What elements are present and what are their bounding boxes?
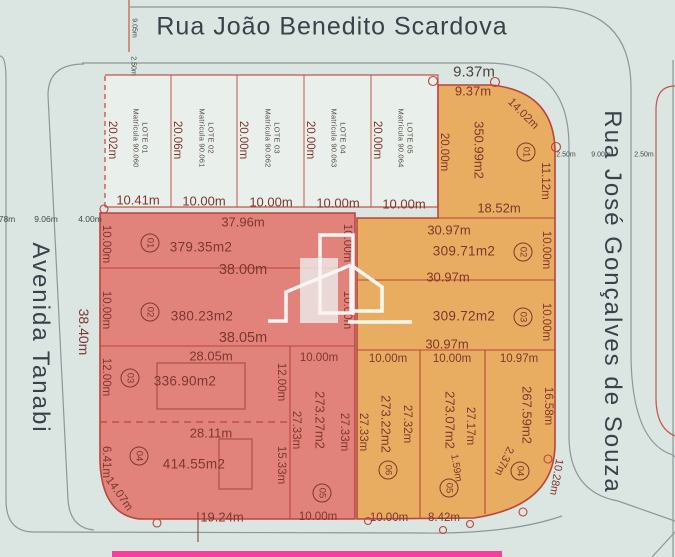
area-label: 350.99m2	[472, 121, 487, 179]
dim-label: 4.00m	[78, 214, 102, 224]
lot-label: LOTE 04Matrícula 90.063	[329, 108, 348, 167]
dim-label: 16.58m	[542, 387, 554, 425]
lot-number-badge: 03	[514, 308, 533, 327]
lot-number-badge: 02	[141, 303, 160, 322]
area-label: 267.59m2	[520, 386, 535, 444]
dim-label: 14.07m	[103, 475, 135, 513]
dim-label: 10.00m	[382, 197, 425, 212]
dim-label: 30.97m	[425, 337, 468, 352]
dim-label: 78m	[0, 214, 15, 224]
site-plan-map: Rua João Benedito Scardova Avenida Tanab…	[0, 0, 675, 557]
street-name-right: Rua José Gonçalves de Souza	[598, 110, 626, 494]
street-name-left: Avenida Tanabi	[26, 242, 54, 433]
area-label: 380.23m2	[171, 309, 233, 324]
dim-label: 28.11m	[190, 426, 232, 441]
lot-number-badge: 01	[141, 234, 160, 253]
dim-label: 10.00m	[341, 291, 353, 329]
frontage-label: 38.40m	[76, 309, 92, 356]
dim-label: 10.00m	[540, 303, 552, 341]
dim-label: 10.00m	[249, 195, 292, 210]
dim-label: 30.97m	[427, 223, 470, 238]
dim-label: 20.00m	[371, 121, 383, 159]
dim-label: 10.00m	[370, 512, 408, 524]
lot-number-badge: 06	[379, 461, 398, 480]
dim-label: 10.00m	[369, 353, 407, 365]
labels-layer: Rua João Benedito Scardova Avenida Tanab…	[0, 0, 675, 557]
area-label: 309.72m2	[433, 309, 495, 324]
dim-label: 14.02m	[505, 96, 541, 132]
lot-number-badge: 01	[517, 143, 536, 162]
area-label: 414.55m2	[163, 457, 225, 472]
lot-number-badge: 04	[130, 447, 149, 466]
area-label: 309.71m2	[433, 244, 495, 259]
lot-number-badge: 03	[121, 369, 140, 388]
dim-label: 2.50m	[130, 56, 137, 75]
dim-label: 19.24m	[200, 510, 243, 525]
dim-label: 20.00m	[438, 133, 450, 171]
area-label: 336.90m2	[154, 374, 216, 389]
lot-label: LOTE 05Matrícula 90.064	[396, 108, 415, 167]
dim-label: 28.05m	[189, 349, 232, 364]
area-label: 273.22m2	[379, 395, 394, 453]
dim-label: 9.37m	[455, 84, 491, 99]
dim-label: 10.00m	[316, 196, 359, 211]
lot-number-badge: 02	[514, 243, 533, 262]
dim-label: 12.00m	[275, 363, 287, 401]
dim-label: 9.37m	[453, 64, 495, 81]
dim-label: 10.00m	[341, 224, 353, 262]
dim-label: 10.97m	[500, 353, 538, 365]
dim-label: 37.96m	[221, 215, 264, 230]
dim-label: 10.00m	[100, 291, 112, 329]
dim-label: 20.02m	[106, 121, 118, 159]
dim-label: 27.17m	[464, 407, 476, 445]
area-label: 273.07m2	[443, 391, 458, 449]
dim-label: 12.00m	[100, 358, 112, 396]
dim-label: 10.00m	[299, 511, 337, 523]
dim-label: 10.00m	[540, 231, 552, 269]
dim-label: 27.33m	[357, 413, 369, 451]
dim-label: 20.00m	[237, 121, 249, 159]
dim-label: 27.32m	[401, 405, 413, 443]
dim-label: 38.00m	[219, 262, 267, 278]
dim-label: 10.00m	[300, 352, 338, 364]
lot-label: LOTE 02Matrícula 90.061	[197, 108, 216, 167]
dim-label: 20.00m	[304, 121, 316, 159]
area-label: 273.27m2	[313, 391, 328, 449]
dim-label: 30.97m	[426, 270, 469, 285]
dim-label: 15.33m	[275, 446, 287, 484]
dim-label: 20.06m	[171, 121, 183, 159]
dim-label: 10.28m	[547, 458, 565, 496]
dim-label: 9.06m	[34, 214, 58, 224]
dim-label: 10.00m	[100, 225, 112, 263]
lot-label: LOTE 01Matrícula 90.060	[131, 108, 150, 167]
dim-label: 18.52m	[477, 201, 520, 216]
area-label: 379.35m2	[170, 240, 232, 255]
street-name-top: Rua João Benedito Scardova	[156, 13, 507, 42]
dim-label: 2.50m	[556, 152, 575, 159]
lot-label: LOTE 03Matrícula 90.062	[263, 108, 282, 167]
dim-label: 10.00m	[182, 194, 225, 209]
dim-label: 38.05m	[219, 330, 267, 346]
dim-label: 9.05m	[131, 18, 138, 37]
lot-number-badge: 04	[511, 462, 530, 481]
dim-label: 27.33m	[338, 413, 350, 451]
dim-label: 11.12m	[539, 162, 551, 200]
lot-number-badge: 05	[440, 479, 459, 498]
dim-label: 10.41m	[116, 193, 159, 208]
dim-label: 8.42m	[428, 512, 460, 524]
dim-label: 9.00m	[591, 152, 610, 159]
dim-label: 6.41m	[100, 446, 112, 478]
dim-label: 27.33m	[290, 411, 302, 449]
dim-label: 2.50m	[634, 152, 653, 159]
dim-label: 10.00m	[433, 353, 471, 365]
lot-number-badge: 05	[313, 484, 332, 503]
